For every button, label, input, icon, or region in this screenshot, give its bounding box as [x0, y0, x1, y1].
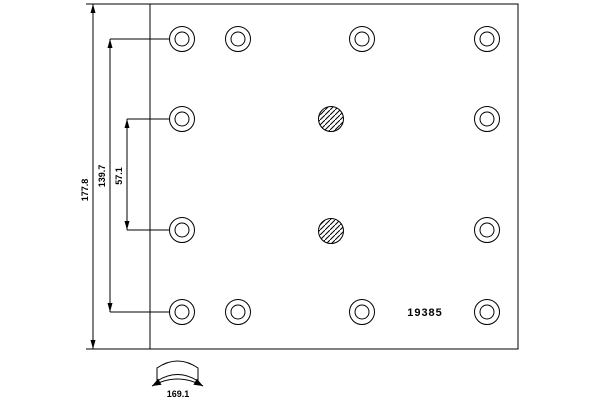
rivet-holes-group [170, 27, 500, 325]
hatched-hole [319, 219, 344, 244]
arrow-up-icon [91, 4, 96, 13]
rivet-hole-inner [355, 32, 369, 46]
dimension-label-rivet-span: 139.7 [97, 165, 107, 188]
arrow-down-icon [91, 340, 96, 349]
rivet-hole-inner [480, 32, 494, 46]
rivet-hole-inner [355, 305, 369, 319]
dimension-label-arc-width: 169.1 [167, 389, 190, 399]
rivet-hole-inner [175, 223, 189, 237]
lining-arc-profile-group: 169.1 [152, 361, 203, 399]
arrow-up-icon [125, 119, 130, 128]
rivet-hole-inner [480, 223, 494, 237]
brake-lining-drawing: 177.8 139.7 57.1 19385 169.1 [0, 0, 600, 400]
rivet-hole-inner [480, 305, 494, 319]
rivet-hole-inner [231, 32, 245, 46]
rivet-hole-inner [231, 305, 245, 319]
hatched-hole [319, 107, 344, 132]
arrow-down-icon [108, 303, 113, 312]
lining-plate-outline [150, 4, 518, 349]
dimension-label-rivet-pitch: 57.1 [114, 167, 124, 185]
rivet-hole-inner [480, 112, 494, 126]
arc-width-double-arrow-icon [152, 379, 203, 386]
rivet-hole-inner [175, 32, 189, 46]
arrow-up-icon [108, 39, 113, 48]
part-number-label: 19385 [407, 307, 443, 319]
hatched-holes-group [319, 107, 344, 244]
lining-arc-profile [157, 361, 198, 381]
brake-lining-drawing-page: 177.8 139.7 57.1 19385 169.1 [0, 0, 600, 400]
dimension-label-overall-height: 177.8 [80, 179, 90, 202]
rivet-hole-inner [175, 305, 189, 319]
arrow-down-icon [125, 221, 130, 230]
rivet-hole-inner [175, 112, 189, 126]
